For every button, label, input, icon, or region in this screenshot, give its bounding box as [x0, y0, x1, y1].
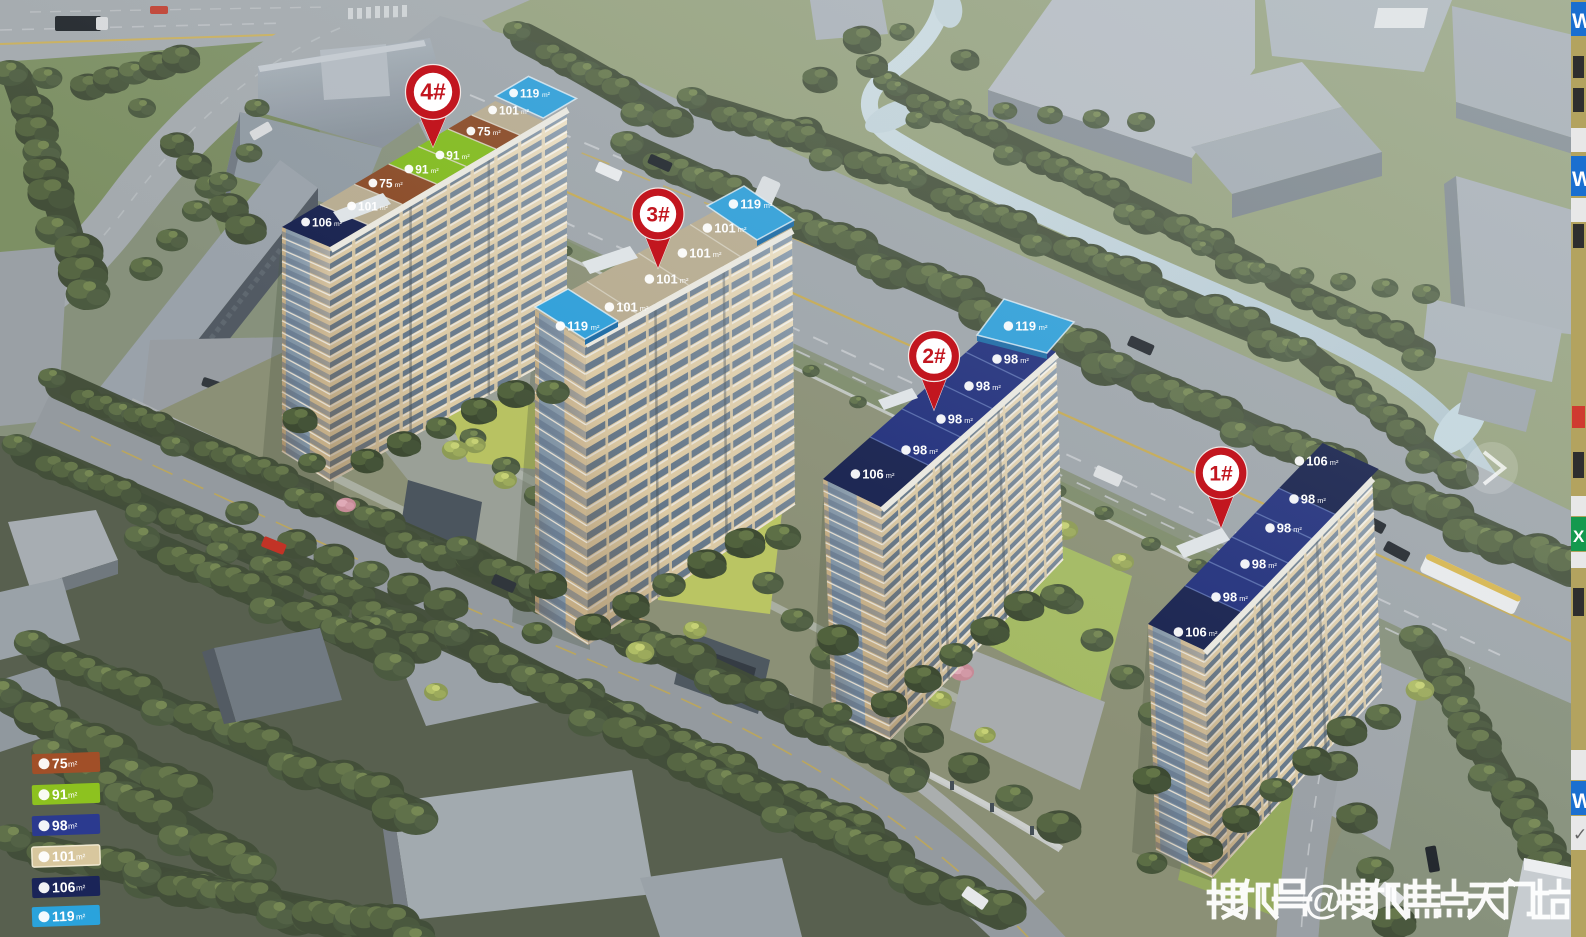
svg-text:119: 119: [52, 908, 75, 925]
svg-text:2#: 2#: [922, 345, 946, 368]
svg-text:101: 101: [52, 848, 76, 865]
svg-text:106: 106: [52, 879, 76, 896]
svg-text:m²: m²: [76, 912, 86, 921]
svg-text:X: X: [1573, 527, 1585, 546]
svg-text:98: 98: [52, 817, 68, 834]
svg-text:✓: ✓: [1573, 825, 1586, 844]
svg-text:@: @: [1304, 878, 1343, 922]
svg-text:75: 75: [52, 755, 68, 772]
svg-text:4#: 4#: [420, 79, 446, 105]
svg-text:m²: m²: [76, 883, 86, 892]
svg-text:m²: m²: [68, 791, 78, 800]
svg-text:m²: m²: [68, 760, 78, 769]
svg-text:W: W: [1572, 10, 1586, 33]
svg-text:1#: 1#: [1209, 462, 1233, 485]
svg-text:m²: m²: [76, 852, 86, 861]
svg-text:m²: m²: [68, 822, 78, 831]
svg-text:W: W: [1572, 790, 1586, 813]
svg-text:91: 91: [52, 786, 68, 803]
svg-text:3#: 3#: [646, 203, 670, 226]
svg-text:W: W: [1572, 168, 1586, 191]
